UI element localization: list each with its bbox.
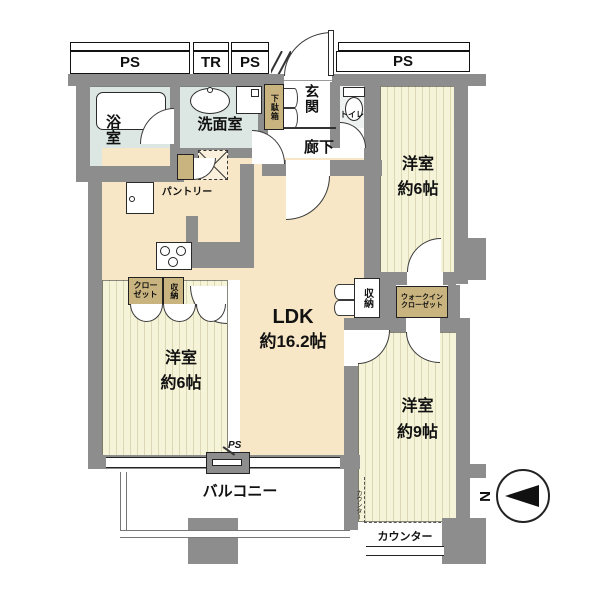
faucet-dot [207,87,213,93]
duct-trim [231,42,269,51]
shoe-cabinet-box: 下駄箱 [264,84,284,130]
folding-door [284,108,298,128]
shoe-cabinet-label: 下駄箱 [270,94,279,121]
ps-bottom-inner [212,459,242,466]
kitchen-partition [186,216,198,244]
toilet-label: トイレ [336,108,368,120]
entrance-label: 玄関 [302,84,322,114]
wall [88,166,184,182]
duct-trim [338,42,470,51]
door-gap [406,318,440,332]
burner [168,257,178,267]
bedroom-se-label: 洋室約9帖 [375,394,460,446]
door-gap [286,160,330,176]
duct-ps-mid: PS [231,51,269,74]
balcony-label: バルコニー [180,480,300,500]
entrance-door-leaf [328,30,334,76]
duct-tr: TR [193,51,229,74]
walkin-closet-label: ウォークインクローゼット [401,294,443,309]
floor-plan: PS TR PS PS [0,0,600,600]
toilet-tank [343,87,365,97]
duct-tr-label: TR [201,54,221,71]
folding-door [284,88,298,108]
sink-dot [129,196,135,202]
washer-pan-drain [251,89,259,97]
balcony-rail [120,530,350,538]
storage-hall-label: 収納 [360,288,375,308]
duct-trim [70,42,190,51]
bedroom-ne-label: 洋室約6帖 [380,152,456,202]
burner [176,246,186,256]
wall [68,74,284,86]
pantry-box [177,154,194,180]
window [246,457,340,468]
walkin-closet-box: ウォークインクローゼット [396,286,448,318]
counter-label: カウンター [370,528,440,544]
duct-ps-right: PS [336,51,470,72]
closet-label: クローゼット [134,282,158,300]
compass: N [478,465,558,527]
storage-kitchen-label: 収納 [169,283,178,299]
wall [88,170,102,468]
wall [380,285,396,318]
storage-kitchen-box: 収納 [163,277,184,305]
wall [448,285,460,318]
pantry-label: パントリー [152,184,222,197]
counter-outline [364,477,456,523]
compass-needle [505,485,539,507]
duct-ps-left-label: PS [120,54,140,71]
closet-box: クローゼット [128,277,163,305]
wall [454,238,486,280]
balcony-rail [120,472,127,534]
duct-ps-right-label: PS [393,53,413,70]
balcony-pillar [188,518,238,564]
ps-bottom-label: PS [228,440,241,451]
duct-trim [193,42,229,51]
door-gap [407,272,443,285]
folding-door [334,284,354,300]
duct-ps-mid-label: PS [240,54,260,71]
hallway-label: 廊下 [262,136,376,156]
window [106,457,210,468]
bedroom-west-label: 洋室約6帖 [140,346,222,396]
washroom-label: 洗面室 [178,112,262,134]
entrance-door-arc [284,32,332,76]
burner [160,246,170,256]
compass-n-label: N [477,491,494,502]
kitchen-partition [188,242,254,268]
window [366,546,444,556]
counter-label-vertical: カウンター [354,490,363,520]
duct-ps-left: PS [70,51,190,74]
ldk-label: LDK約16.2帖 [228,304,358,354]
bath-label: 浴室 [102,114,123,146]
